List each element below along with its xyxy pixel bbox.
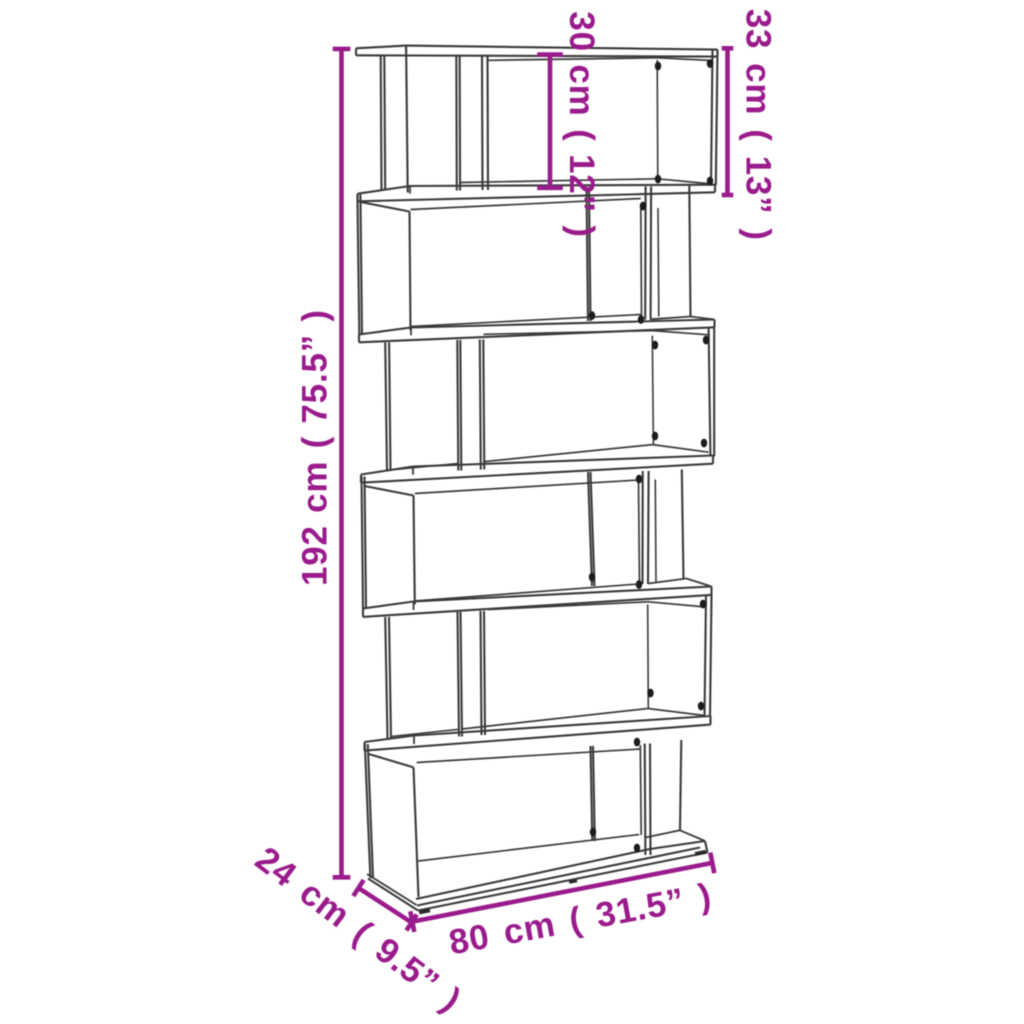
svg-text:33 cm ( 13” ): 33 cm ( 13” ) bbox=[739, 9, 778, 241]
svg-text:192 cm ( 75.5” ): 192 cm ( 75.5” ) bbox=[296, 309, 335, 586]
svg-text:30 cm ( 12” ): 30 cm ( 12” ) bbox=[562, 11, 601, 238]
